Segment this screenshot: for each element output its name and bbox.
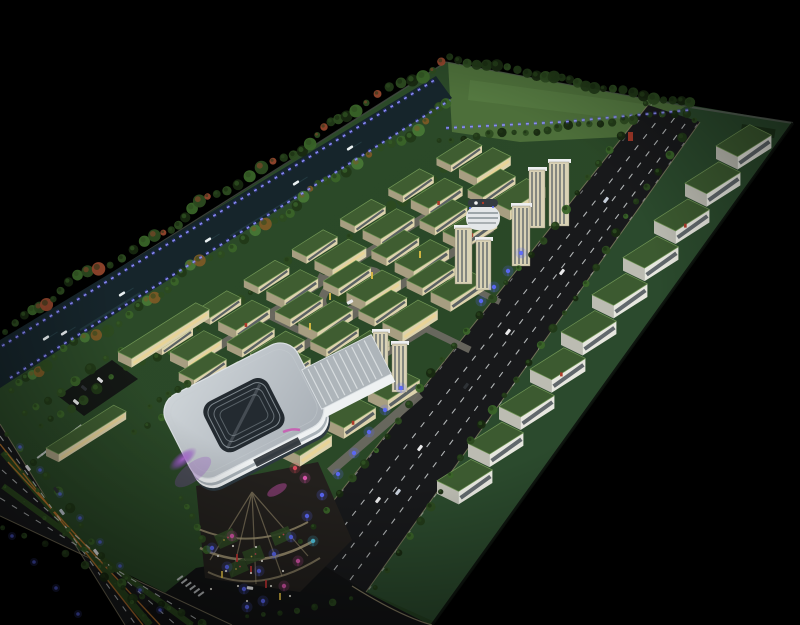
scale-model-photo <box>0 0 800 625</box>
tower <box>454 225 474 284</box>
tower-logo-dot <box>474 201 478 205</box>
tower <box>548 159 571 226</box>
round-logo-tower <box>466 199 500 230</box>
tower <box>475 237 493 290</box>
tower <box>528 167 547 228</box>
model-scene <box>0 0 800 625</box>
